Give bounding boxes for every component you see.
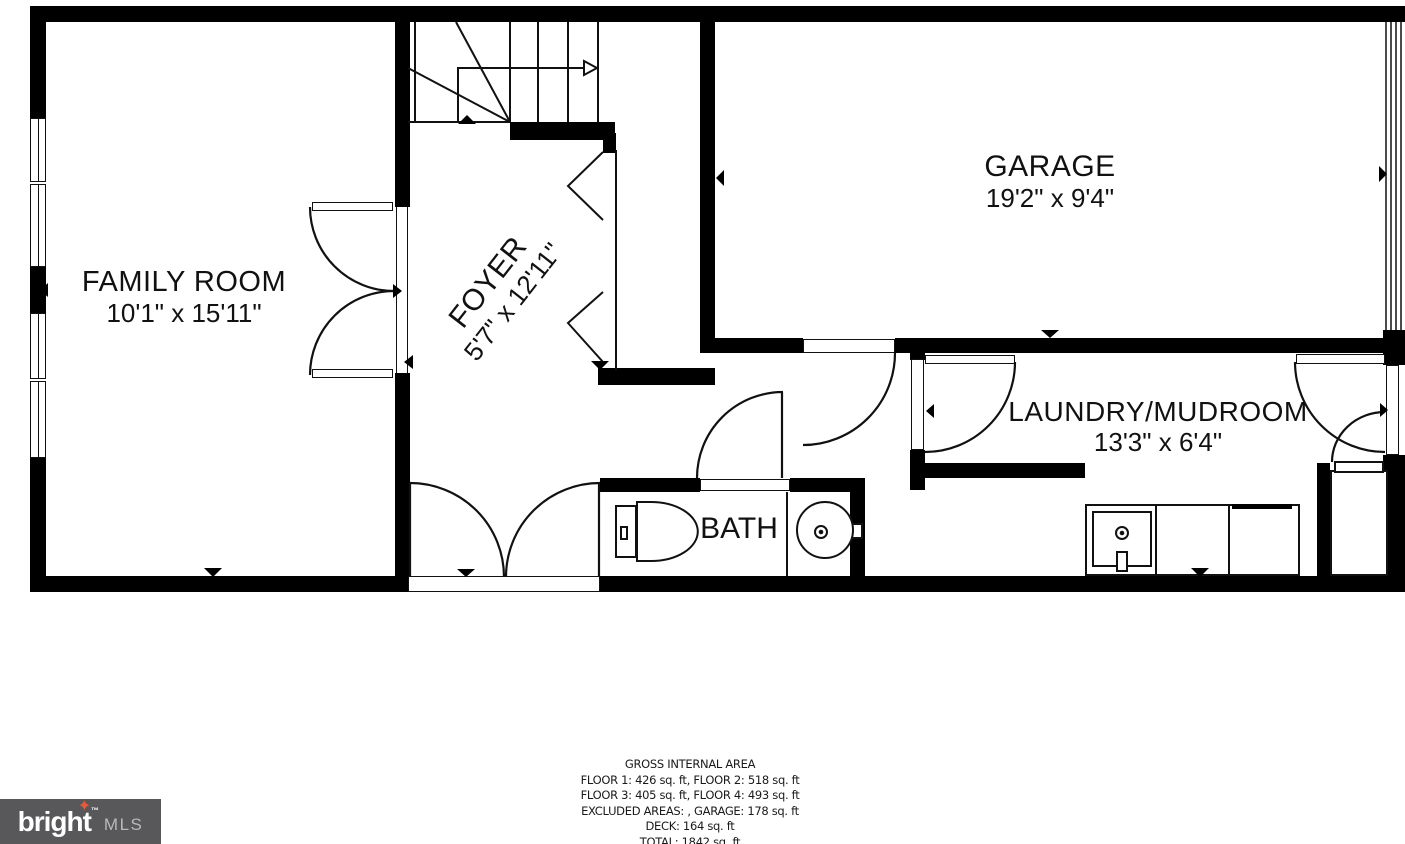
garage-hall-door-arc [803, 353, 895, 445]
area-summary-line: TOTAL: 1842 sq. ft [440, 835, 940, 844]
area-summary: GROSS INTERNAL AREA FLOOR 1: 426 sq. ft,… [440, 757, 940, 844]
marker-right-icon [393, 284, 402, 298]
area-summary-title: GROSS INTERNAL AREA [440, 757, 940, 773]
french-door-arc-bottom [310, 291, 394, 375]
cabinet-door-arc [1332, 412, 1385, 462]
room-dimensions: 10'1" x 15'11" [59, 299, 309, 328]
toilet-bowl [637, 502, 698, 561]
stair-direction-arrow [458, 68, 584, 122]
stair-arrowhead-icon [584, 61, 597, 75]
foyer-entry-door-arc-right [506, 483, 600, 577]
garage-door-panel [1386, 22, 1401, 330]
french-door-arc-top [310, 207, 394, 291]
marker-down-icon [1191, 568, 1209, 577]
trademark-symbol: ™ [91, 806, 99, 815]
logo-brand-text: bright✦™ [18, 807, 99, 836]
marker-up-icon [458, 115, 476, 124]
room-name: FAMILY ROOM [59, 266, 309, 299]
marker-down-icon [591, 361, 609, 370]
marker-left-icon [716, 170, 724, 186]
bath-sink-drain-dot [819, 530, 824, 535]
floor-plan: FAMILY ROOM 10'1" x 15'11" FOYER 5'7" x … [0, 0, 1405, 844]
foyer-entry-door-arc-left [410, 483, 504, 577]
family-room-label: FAMILY ROOM 10'1" x 15'11" [59, 266, 309, 328]
bath-label: BATH [698, 512, 780, 546]
room-name: LAUNDRY/MUDROOM [1008, 396, 1308, 428]
plan-linework [0, 0, 1405, 700]
area-summary-line: EXCLUDED AREAS: , GARAGE: 178 sq. ft [440, 804, 940, 820]
area-summary-line: FLOOR 3: 405 sq. ft, FLOOR 4: 493 sq. ft [440, 788, 940, 804]
marker-left-icon [40, 283, 48, 297]
logo-brand-t: t✦ [83, 808, 91, 836]
marker-up-icon [1041, 13, 1059, 21]
logo-mls-text: MLS [104, 815, 143, 835]
marker-up-icon [204, 14, 222, 22]
marker-right-icon [1380, 403, 1388, 417]
room-name: GARAGE [925, 150, 1175, 184]
garage-label: GARAGE 19'2" x 9'4" [925, 150, 1175, 213]
logo-brand-prefix: brigh [18, 806, 83, 837]
laundry-sink-drain-dot [1120, 531, 1125, 536]
room-dimensions: 13'3" x 6'4" [1008, 428, 1308, 457]
area-summary-line: FLOOR 1: 426 sq. ft, FLOOR 2: 518 sq. ft [440, 773, 940, 789]
laundry-mudroom-label: LAUNDRY/MUDROOM 13'3" x 6'4" [1008, 396, 1308, 457]
bright-mls-logo: bright✦™ MLS [0, 799, 161, 844]
marker-down-icon [204, 568, 222, 577]
bath-door-arc [697, 392, 783, 478]
room-dimensions: 19'2" x 9'4" [925, 184, 1175, 213]
area-summary-line: DECK: 164 sq. ft [440, 819, 940, 835]
marker-down-icon [457, 569, 475, 577]
mudroom-entry-door-arc [1295, 362, 1385, 452]
star-icon: ✦ [78, 799, 90, 815]
marker-left-icon [926, 404, 934, 418]
bifold-door [568, 292, 603, 362]
laundry-door-arc [925, 362, 1015, 452]
marker-down-icon [1041, 330, 1059, 338]
stair-treads [408, 22, 598, 122]
